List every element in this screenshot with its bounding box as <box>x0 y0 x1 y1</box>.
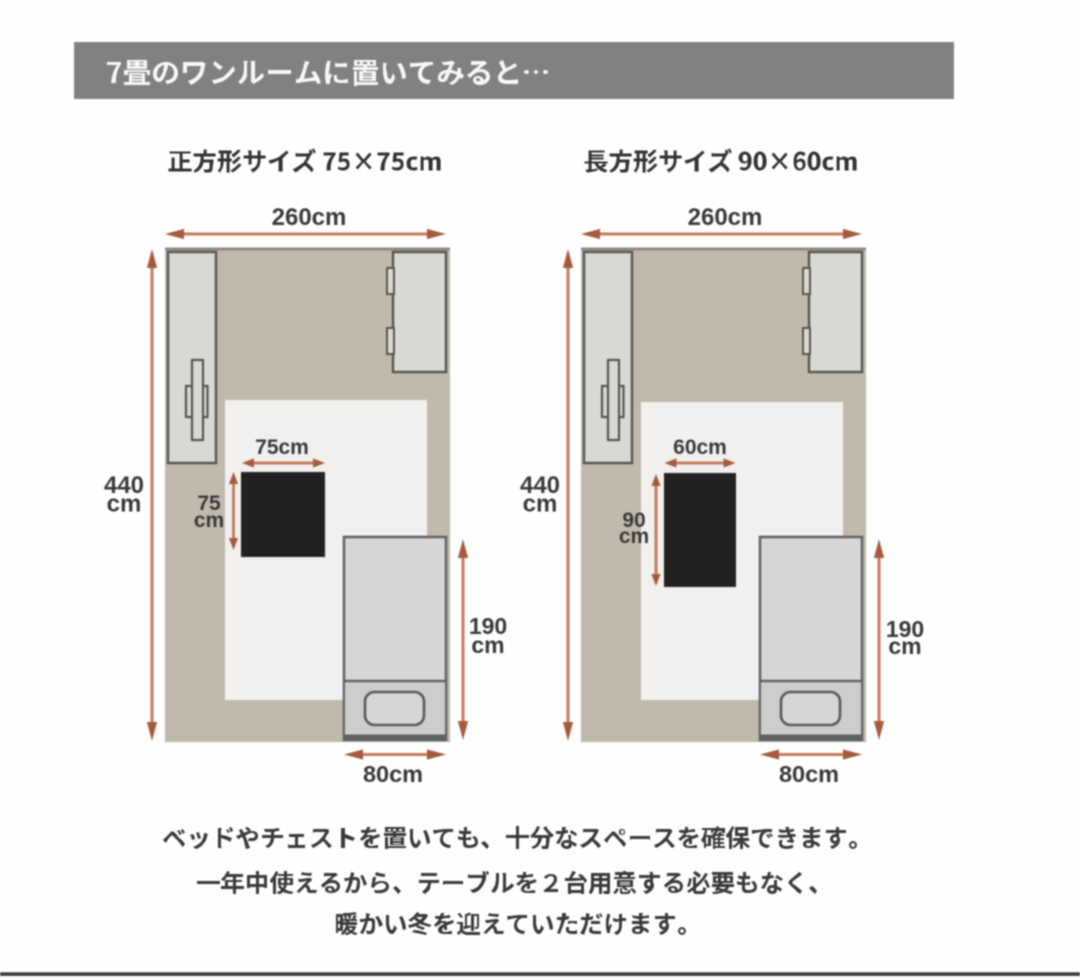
svg-text:cm: cm <box>194 509 224 532</box>
svg-text:cm: cm <box>888 633 921 659</box>
svg-text:cm: cm <box>619 525 649 548</box>
svg-text:60cm: 60cm <box>673 436 727 459</box>
svg-text:cm: cm <box>471 632 504 658</box>
svg-text:75cm: 75cm <box>255 436 309 459</box>
svg-text:cm: cm <box>107 491 142 518</box>
svg-text:80cm: 80cm <box>363 761 423 787</box>
svg-text:cm: cm <box>523 491 558 518</box>
svg-text:80cm: 80cm <box>779 761 839 787</box>
svg-text:260cm: 260cm <box>688 204 763 231</box>
svg-text:260cm: 260cm <box>272 204 347 231</box>
